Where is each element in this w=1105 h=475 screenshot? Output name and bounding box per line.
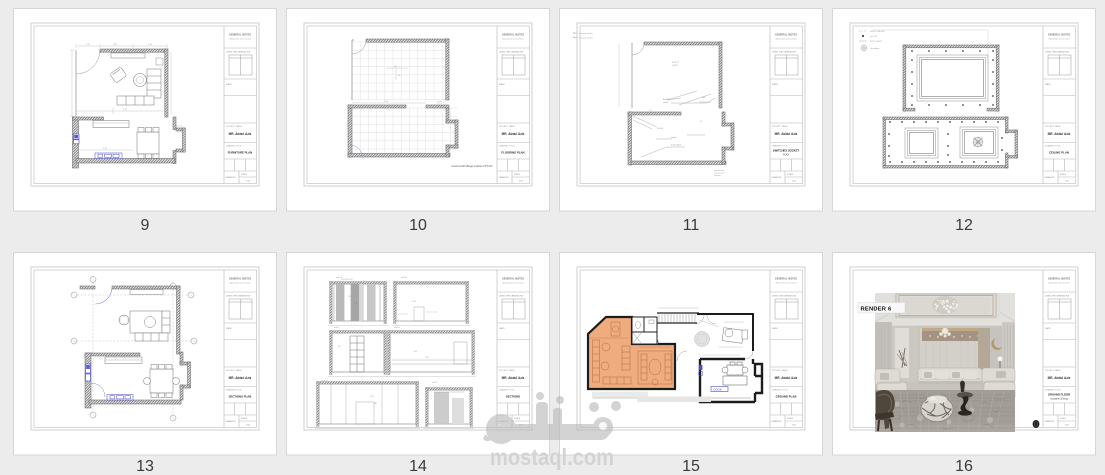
svg-text:USING THE DIMENSIONS: USING THE DIMENSIONS [226,52,251,54]
svg-text:switch: switch [671,136,677,139]
svg-text:SPOT LIGHT: SPOT LIGHT [870,41,883,43]
svg-text:DRAWING TITLE: DRAWING TITLE [226,389,242,392]
svg-text:Led 7W: Led 7W [870,36,877,38]
svg-text:GENERAL NOTES: GENERAL NOTES [502,277,525,281]
svg-text:one way switch: one way switch [579,32,593,35]
svg-text:DATE: DATE [772,83,778,86]
svg-text:GENERAL NOTES: GENERAL NOTES [229,33,252,37]
svg-text:COOK: COOK [713,388,722,392]
svg-text:dimensions are in meter: dimensions are in meter [1048,282,1070,285]
svg-text:SECTIONS PLAN: SECTIONS PLAN [229,395,252,399]
svg-text:USING THE DIMENSIONS: USING THE DIMENSIONS [499,296,524,298]
svg-text:MR. Abdul Aziz: MR. Abdul Aziz [775,376,798,380]
svg-text:GENERAL NOTES: GENERAL NOTES [1048,33,1071,37]
svg-text:dimensions are in meter: dimensions are in meter [775,282,797,285]
svg-text:PLAN: PLAN [783,154,789,157]
svg-text:DRAWN BY: DRAWN BY [1045,176,1056,179]
svg-text:DRAWN BY: DRAWN BY [1045,420,1056,423]
svg-text:DRAWING TITLE: DRAWING TITLE [1045,145,1061,148]
svg-text:DATE: DATE [1045,83,1051,86]
svg-text:SCALE: SCALE [241,173,248,176]
svg-text:GROUND FLOOR: GROUND FLOOR [1048,393,1070,397]
svg-text:SCALE: SCALE [1060,417,1067,420]
svg-text:DRAWING TITLE: DRAWING TITLE [772,145,788,148]
svg-text:RENDER 6: RENDER 6 [861,307,892,313]
svg-text:dimensions are in meter: dimensions are in meter [502,282,524,285]
svg-text:PROJECT NAME: PROJECT NAME [1045,125,1061,128]
svg-text:2.20 socket: 2.20 socket [671,144,682,147]
svg-text:wall. A: wall. A [336,276,342,279]
svg-text:1.20 1.00 1.20: 1.20 1.00 1.20 [341,279,353,281]
svg-text:PROJECT NAME: PROJECT NAME [499,125,515,128]
svg-text:GENERAL NOTES: GENERAL NOTES [229,277,252,281]
svg-text:DRAWN BY: DRAWN BY [226,420,237,423]
svg-text:DATE: DATE [772,327,778,330]
svg-text:dimensions are in meter: dimensions are in meter [502,38,524,41]
svg-text:MR. Abdul Aziz: MR. Abdul Aziz [502,132,525,136]
svg-text:DATE: DATE [499,83,505,86]
svg-text:1.05 A: 1.05 A [657,127,663,130]
svg-text:SCALE: SCALE [787,417,794,420]
svg-text:FURNITURE PLAN: FURNITURE PLAN [228,151,253,155]
svg-text:GENERAL NOTES: GENERAL NOTES [775,33,798,37]
svg-text:LIGHT: LIGHT [672,65,679,67]
svg-text:PROJECT NAME: PROJECT NAME [226,369,242,372]
svg-text:covered with Beige marble 0.9*: covered with Beige marble 0.9*0.6m [451,164,493,168]
svg-text:MR. Abdul Aziz: MR. Abdul Aziz [229,132,252,136]
svg-text:DRAWING TITLE: DRAWING TITLE [772,389,788,392]
svg-text:SCALE: SCALE [241,417,248,420]
svg-text:USING THE DIMENSIONS: USING THE DIMENSIONS [772,52,797,54]
svg-text:DRAWING TITLE: DRAWING TITLE [1045,389,1061,392]
svg-text:DRAWING TITLE: DRAWING TITLE [226,145,242,148]
svg-text:DRAWN BY: DRAWN BY [499,176,510,179]
svg-text:DRAWING TITLE: DRAWING TITLE [499,145,515,148]
svg-text:aaa aaa: aaa aaa [714,175,721,177]
svg-text:GENERAL NOTES: GENERAL NOTES [502,33,525,37]
svg-text:PROJECT NAME: PROJECT NAME [1045,369,1061,372]
svg-text:LIGHT LINE 9W: LIGHT LINE 9W [870,31,885,33]
svg-text:GENERAL NOTES: GENERAL NOTES [1048,277,1071,281]
svg-text:CEILING PLAN: CEILING PLAN [1049,151,1069,155]
svg-text:dimensions are in meter: dimensions are in meter [775,38,797,41]
svg-text:DATE: DATE [499,327,505,330]
svg-text:wall. D: wall. D [394,327,401,329]
svg-text:DATE: DATE [1045,327,1051,330]
svg-text:PROJECT NAME: PROJECT NAME [772,125,788,128]
svg-text:SWITCHES SOCKET: SWITCHES SOCKET [773,149,799,153]
svg-text:dimensions are in meter: dimensions are in meter [229,282,251,285]
svg-text:6 SPOT: 6 SPOT [672,62,680,64]
svg-text:S.VXV: S.VXV [663,99,670,101]
svg-text:wall. C: wall. C [334,327,341,329]
svg-text:GROUND PLAN: GROUND PLAN [776,395,797,399]
svg-text:SCALE: SCALE [787,173,794,176]
svg-text:PROJECT NAME: PROJECT NAME [499,369,515,372]
svg-text:SCALE: SCALE [514,173,521,176]
svg-text:PROJECT NAME: PROJECT NAME [772,369,788,372]
svg-text:wall. F: wall. F [432,382,439,384]
svg-text:DRAWN BY: DRAWN BY [772,420,783,423]
svg-text:DRAWN BY: DRAWN BY [226,176,237,179]
svg-text:SCALE: SCALE [1060,173,1067,176]
svg-text:DATE: DATE [226,327,232,330]
svg-text:USING THE DIMENSIONS: USING THE DIMENSIONS [1045,52,1070,54]
svg-text:wall. B: wall. B [401,277,408,279]
svg-text:switch: switch [663,101,669,104]
svg-text:MR. Abdul Aziz: MR. Abdul Aziz [1048,376,1071,380]
svg-text:USING THE DIMENSIONS: USING THE DIMENSIONS [1045,296,1070,298]
svg-text:dimensions are in meter: dimensions are in meter [1048,38,1070,41]
svg-text:two way socket: two way socket [579,37,593,40]
svg-text:PROJECT NAME: PROJECT NAME [226,125,242,128]
svg-text:chandelier: chandelier [870,48,880,50]
svg-text:MR. Abdul Aziz: MR. Abdul Aziz [775,132,798,136]
svg-text:USING THE DIMENSIONS: USING THE DIMENSIONS [226,296,251,298]
svg-text:dimensions are in meter: dimensions are in meter [229,38,251,41]
svg-text:MR. Abdul Aziz: MR. Abdul Aziz [1048,132,1071,136]
svg-text:mostaql.com: mostaql.com [490,444,614,470]
svg-text:DATE: DATE [226,83,232,86]
svg-text:USING THE DIMENSIONS: USING THE DIMENSIONS [499,52,524,54]
svg-text:MR. Abdul Aziz: MR. Abdul Aziz [502,376,525,380]
svg-text:GENERAL NOTES: GENERAL NOTES [775,277,798,281]
svg-text:FLOORING PLAN: FLOORING PLAN [501,151,524,155]
svg-text:MR. Abdul Aziz: MR. Abdul Aziz [229,376,252,380]
svg-text:reception & living: reception & living [1050,398,1068,401]
svg-text:wall. E: wall. E [322,380,329,382]
svg-text:USING THE DIMENSIONS: USING THE DIMENSIONS [772,296,797,298]
svg-text:DRAWN BY: DRAWN BY [772,176,783,179]
